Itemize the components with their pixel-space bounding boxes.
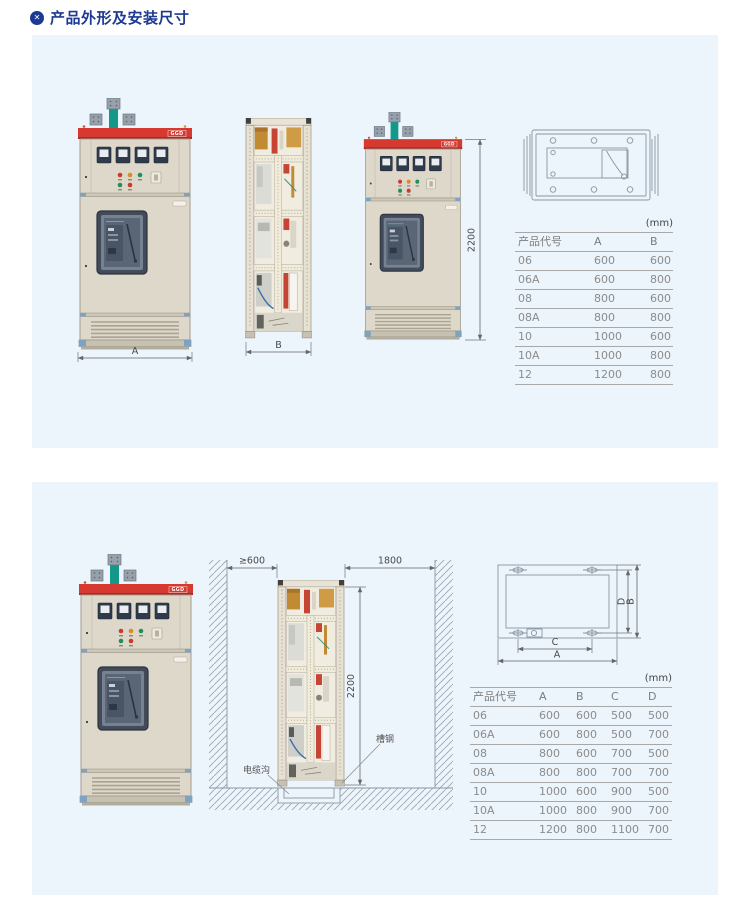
table-cell: 10	[515, 328, 591, 347]
table-cell: 1100	[608, 821, 645, 840]
table-cell: 700	[645, 726, 672, 745]
table-cell: 600	[647, 252, 673, 271]
table-cell: 800	[573, 821, 608, 840]
column-header: D	[645, 688, 672, 707]
table-cell: 10A	[515, 347, 591, 366]
table-row: 1212008001100700	[470, 821, 672, 840]
cabinet-top-view-diagram	[524, 130, 658, 200]
brand-logo: GGD	[444, 142, 455, 147]
column-header: B	[647, 233, 673, 252]
table-cell: 1200	[591, 366, 647, 385]
column-header: C	[608, 688, 645, 707]
dimension-table-bottom: (mm) 产品代号ABCD 0660060050050006A600800500…	[470, 672, 672, 840]
table-row: 121200800	[515, 366, 673, 385]
cabinet-side-internal-view	[277, 580, 345, 786]
table-cell: 900	[608, 783, 645, 802]
channel-steel-label: 槽钢	[376, 733, 394, 745]
table-cell: 10	[470, 783, 536, 802]
table-row: 101000600	[515, 328, 673, 347]
dimension-table-top: (mm) 产品代号AB 0660060006A6008000880060008A…	[515, 217, 673, 385]
table-cell: 06A	[470, 726, 536, 745]
table-cell: 1000	[536, 783, 573, 802]
table-cell: 500	[645, 783, 672, 802]
table-cell: 600	[573, 783, 608, 802]
table-row: 06A600800500700	[470, 726, 672, 745]
table-cell: 700	[608, 764, 645, 783]
dimension-height-2200: 2200	[345, 587, 366, 785]
table-cell: 600	[536, 726, 573, 745]
table-cell: 800	[647, 347, 673, 366]
installation-footprint-diagram: C A D B	[498, 565, 641, 665]
table-cell: 500	[608, 707, 645, 726]
unit-label: (mm)	[470, 672, 672, 686]
dim-b-label: B	[275, 340, 282, 351]
dim-height-label: 2200	[346, 674, 357, 698]
table-cell: 800	[647, 309, 673, 328]
footprint-dim-b-label: B	[626, 598, 637, 605]
channel-steel-leader	[342, 744, 380, 783]
table-cell: 06	[470, 707, 536, 726]
table-cell: 900	[608, 802, 645, 821]
table-row: 08A800800	[515, 309, 673, 328]
table-cell: 10A	[470, 802, 536, 821]
brand-logo: GGD	[171, 587, 184, 593]
table-cell: 600	[591, 252, 647, 271]
dimension-left-clearance: ≥600	[227, 556, 277, 579]
table-cell: 08A	[515, 309, 591, 328]
footprint-dim-a-label: A	[554, 650, 561, 661]
table-cell: 600	[573, 745, 608, 764]
dim-a-label: A	[132, 346, 139, 357]
table-cell: 800	[591, 309, 647, 328]
cabinet-side-internal-view	[245, 118, 312, 338]
installation-dimensions-panel: GGD ≥600	[32, 482, 718, 895]
table-cell: 800	[647, 366, 673, 385]
page: ✕ 产品外形及安装尺寸 GGD A B GGD	[0, 0, 750, 900]
section-bullet-icon: ✕	[30, 11, 44, 25]
product-dimension-table: 产品代号AB 0660060006A6008000880060008A80080…	[515, 232, 673, 385]
table-cell: 06A	[515, 271, 591, 290]
column-header: B	[573, 688, 608, 707]
right-clearance-label: 1800	[378, 556, 402, 567]
table-cell: 800	[573, 726, 608, 745]
installation-dimension-table: 产品代号ABCD 0660060050050006A60080050070008…	[470, 687, 672, 840]
unit-label: (mm)	[515, 217, 673, 231]
table-row: 101000600900500	[470, 783, 672, 802]
table-row: 08800600700500	[470, 745, 672, 764]
table-cell: 800	[647, 271, 673, 290]
table-header-row: 产品代号ABCD	[470, 688, 672, 707]
column-header: A	[536, 688, 573, 707]
outline-dimensions-panel: GGD A B GGD 2200	[32, 35, 718, 448]
table-cell: 800	[536, 745, 573, 764]
column-header: 产品代号	[470, 688, 536, 707]
dimension-height-2200: 2200	[465, 140, 486, 341]
table-cell: 600	[536, 707, 573, 726]
dim-height-label: 2200	[467, 228, 478, 252]
table-row: 08A800800700700	[470, 764, 672, 783]
page-header: ✕ 产品外形及安装尺寸	[30, 7, 190, 28]
table-header-row: 产品代号AB	[515, 233, 673, 252]
table-cell: 700	[645, 821, 672, 840]
table-cell: 08A	[470, 764, 536, 783]
table-cell: 08	[515, 290, 591, 309]
table-cell: 08	[470, 745, 536, 764]
table-row: 06600600500500	[470, 707, 672, 726]
table-cell: 600	[573, 707, 608, 726]
column-header: 产品代号	[515, 233, 591, 252]
table-cell: 06	[515, 252, 591, 271]
table-cell: 12	[515, 366, 591, 385]
table-cell: 12	[470, 821, 536, 840]
table-cell: 800	[536, 764, 573, 783]
table-cell: 800	[573, 802, 608, 821]
table-cell: 700	[645, 802, 672, 821]
table-row: 06600600	[515, 252, 673, 271]
table-cell: 1000	[536, 802, 573, 821]
table-cell: 600	[647, 290, 673, 309]
table-cell: 1200	[536, 821, 573, 840]
table-cell: 800	[573, 764, 608, 783]
table-row: 10A1000800	[515, 347, 673, 366]
table-cell: 600	[647, 328, 673, 347]
table-cell: 500	[645, 745, 672, 764]
cable-trench-label: 电缆沟	[243, 764, 270, 776]
table-row: 08800600	[515, 290, 673, 309]
dimension-right-clearance: 1800	[345, 556, 435, 579]
table-cell: 1000	[591, 328, 647, 347]
column-header: A	[591, 233, 647, 252]
left-clearance-label: ≥600	[239, 556, 265, 567]
page-title: 产品外形及安装尺寸	[50, 7, 190, 28]
table-row: 06A600800	[515, 271, 673, 290]
table-cell: 500	[645, 707, 672, 726]
table-cell: 1000	[591, 347, 647, 366]
table-cell: 800	[591, 290, 647, 309]
footprint-dim-c-label: C	[552, 637, 559, 648]
table-cell: 600	[591, 271, 647, 290]
table-row: 10A1000800900700	[470, 802, 672, 821]
dimension-b: B	[246, 340, 311, 356]
table-cell: 700	[608, 745, 645, 764]
table-cell: 700	[645, 764, 672, 783]
cable-trench	[278, 788, 340, 803]
table-cell: 500	[608, 726, 645, 745]
brand-logo: GGD	[170, 131, 183, 137]
